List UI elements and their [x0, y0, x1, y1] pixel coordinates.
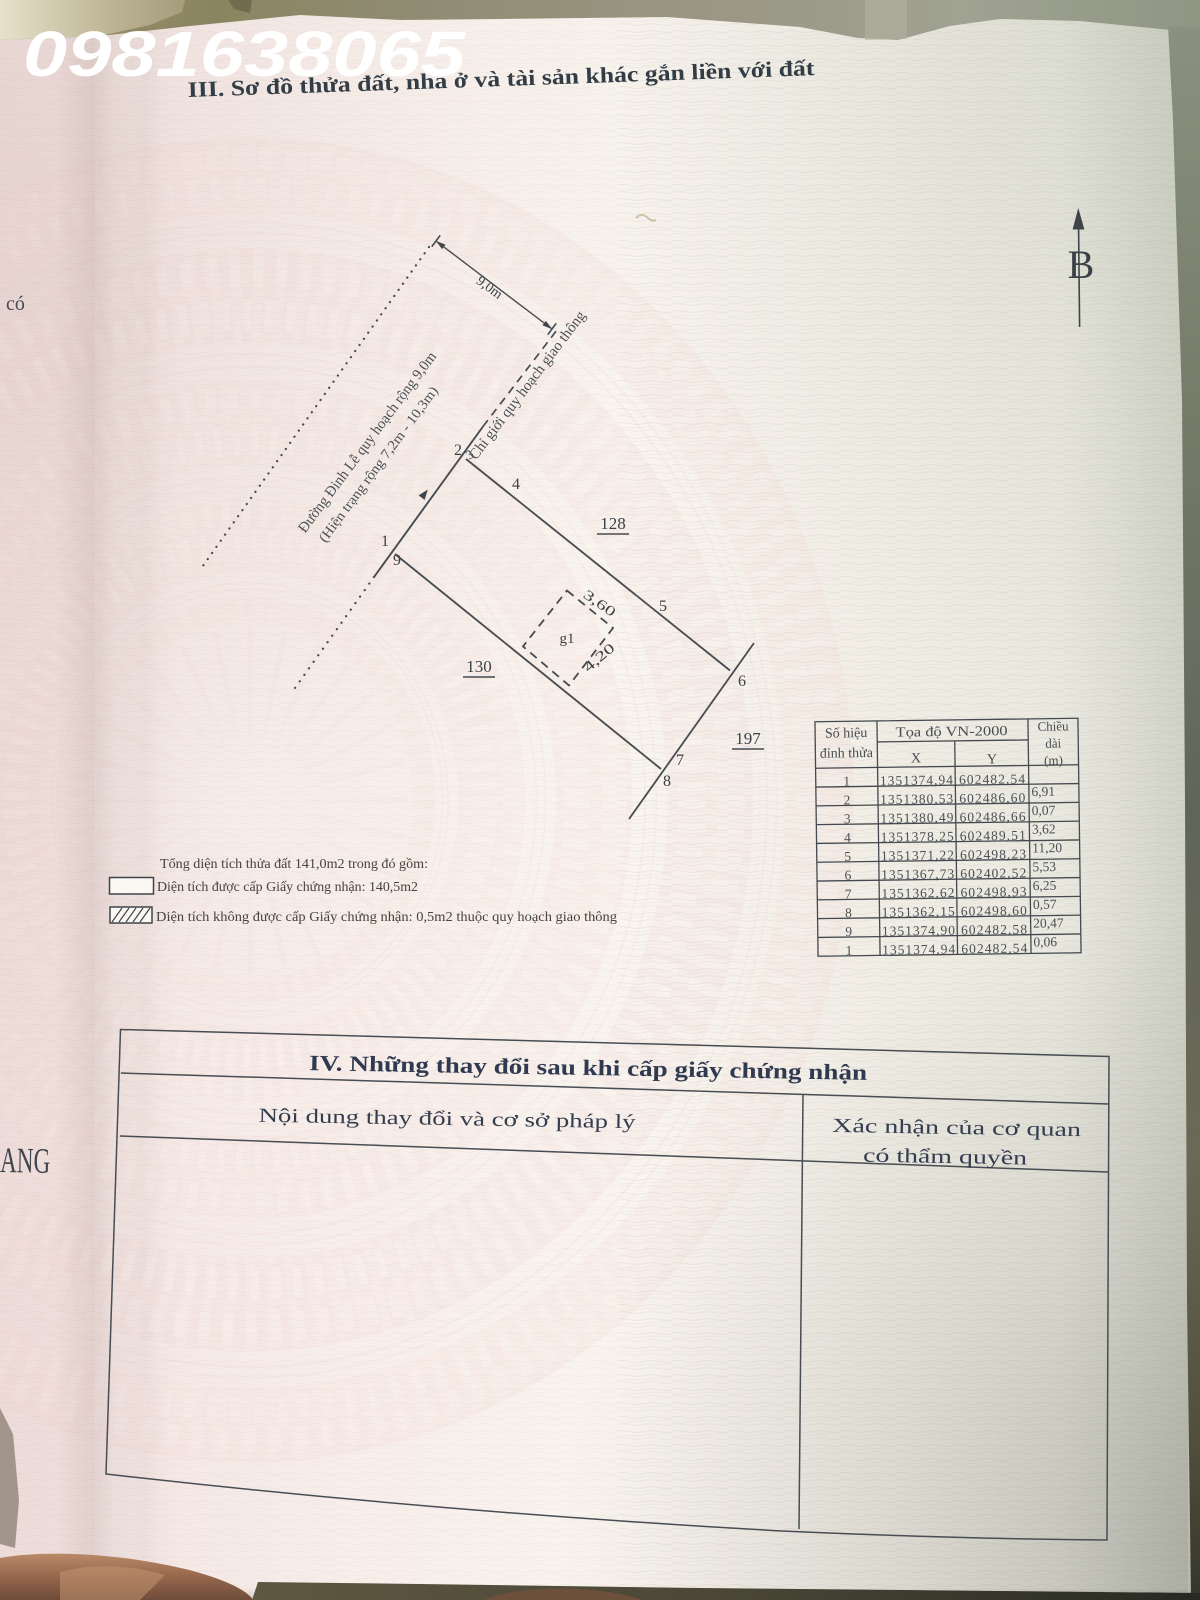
svg-text:1351374,94: 1351374,94: [880, 772, 953, 788]
svg-text:3: 3: [844, 811, 851, 826]
svg-text:130: 130: [466, 657, 492, 676]
svg-text:9: 9: [393, 552, 401, 569]
svg-text:602482,54: 602482,54: [959, 771, 1025, 787]
svg-text:0,06: 0,06: [1033, 934, 1057, 949]
svg-text:5: 5: [844, 849, 851, 864]
svg-text:5,53: 5,53: [1032, 859, 1056, 874]
svg-text:1351378,25: 1351378,25: [881, 829, 954, 845]
svg-text:8: 8: [663, 773, 671, 790]
svg-text:ANG: ANG: [0, 1140, 51, 1181]
svg-text:Tổng diện tích thửa đất 141,0m: Tổng diện tích thửa đất 141,0m2 trong đó…: [160, 857, 428, 872]
svg-text:602486,66: 602486,66: [959, 809, 1025, 825]
svg-text:1351380,49: 1351380,49: [880, 810, 953, 826]
svg-text:0,07: 0,07: [1032, 803, 1056, 818]
svg-text:8: 8: [845, 905, 852, 920]
svg-text:Tọa độ VN-2000: Tọa độ VN-2000: [896, 724, 1008, 740]
svg-text:Chiều: Chiều: [1037, 718, 1069, 733]
svg-text:có thẩm quyền: có thẩm quyền: [863, 1145, 1027, 1170]
svg-text:1351380,53: 1351380,53: [880, 791, 953, 807]
svg-text:Diện tích được cấp Giấy chứng: Diện tích được cấp Giấy chứng nhận: 140,…: [157, 880, 418, 895]
svg-text:4: 4: [512, 476, 520, 493]
svg-text:1: 1: [381, 533, 389, 550]
svg-text:9: 9: [845, 924, 852, 939]
svg-text:20,47: 20,47: [1033, 915, 1064, 930]
svg-text:0,57: 0,57: [1033, 897, 1057, 912]
svg-text:0981638065: 0981638065: [23, 18, 467, 90]
svg-text:dài: dài: [1045, 735, 1061, 750]
svg-text:(m): (m): [1044, 752, 1063, 767]
svg-text:128: 128: [600, 514, 626, 533]
svg-text:2: 2: [454, 442, 462, 459]
svg-text:1351367,73: 1351367,73: [881, 866, 954, 882]
svg-text:g1: g1: [560, 631, 575, 647]
svg-text:602498,23: 602498,23: [960, 846, 1026, 862]
svg-text:7: 7: [845, 886, 852, 901]
svg-text:5: 5: [659, 598, 667, 615]
svg-text:1351374,90: 1351374,90: [882, 923, 955, 939]
svg-text:602482,58: 602482,58: [961, 922, 1027, 938]
svg-text:602489,51: 602489,51: [960, 828, 1026, 844]
svg-text:602486,60: 602486,60: [959, 790, 1025, 806]
svg-text:3,62: 3,62: [1032, 821, 1056, 836]
svg-text:6: 6: [845, 868, 852, 883]
svg-text:B: B: [1068, 242, 1095, 287]
svg-text:602402,52: 602402,52: [960, 865, 1026, 881]
svg-text:1: 1: [843, 774, 850, 789]
svg-text:6: 6: [738, 673, 746, 690]
svg-text:602498,60: 602498,60: [961, 903, 1027, 919]
svg-text:Diện tích không được cấp Giấy: Diện tích không được cấp Giấy chứng nhận…: [156, 910, 617, 925]
svg-text:197: 197: [735, 729, 761, 748]
svg-text:1: 1: [846, 943, 853, 958]
svg-text:Xác nhận của cơ quan: Xác nhận của cơ quan: [832, 1115, 1081, 1141]
svg-text:2: 2: [844, 792, 851, 807]
svg-text:602498,93: 602498,93: [960, 884, 1026, 900]
svg-text:11,20: 11,20: [1032, 840, 1062, 855]
svg-text:6,25: 6,25: [1033, 878, 1057, 893]
svg-text:1351362,15: 1351362,15: [882, 904, 955, 920]
svg-text:Số hiệu: Số hiệu: [825, 726, 868, 742]
svg-text:có: có: [6, 293, 25, 315]
svg-text:7: 7: [676, 752, 684, 769]
svg-text:đỉnh thửa: đỉnh thửa: [820, 746, 874, 762]
svg-text:1351362,62: 1351362,62: [881, 885, 954, 901]
svg-text:6,91: 6,91: [1031, 784, 1055, 799]
svg-text:X: X: [911, 751, 921, 766]
svg-text:4: 4: [844, 830, 851, 845]
svg-text:1351371,22: 1351371,22: [881, 847, 954, 863]
svg-text:1351374,94: 1351374,94: [882, 941, 955, 957]
svg-text:Y: Y: [987, 752, 997, 767]
svg-text:602482,54: 602482,54: [961, 940, 1027, 956]
